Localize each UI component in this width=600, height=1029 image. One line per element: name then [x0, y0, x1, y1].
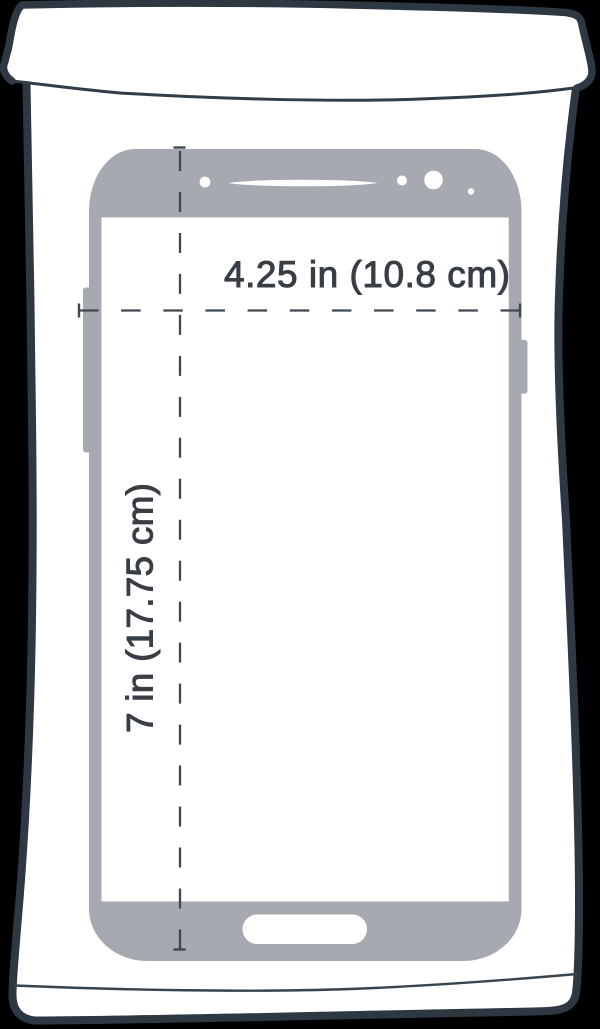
svg-text:4.25 in (10.8 cm): 4.25 in (10.8 cm) — [224, 254, 510, 295]
svg-text:7 in (17.75 cm): 7 in (17.75 cm) — [120, 483, 161, 733]
